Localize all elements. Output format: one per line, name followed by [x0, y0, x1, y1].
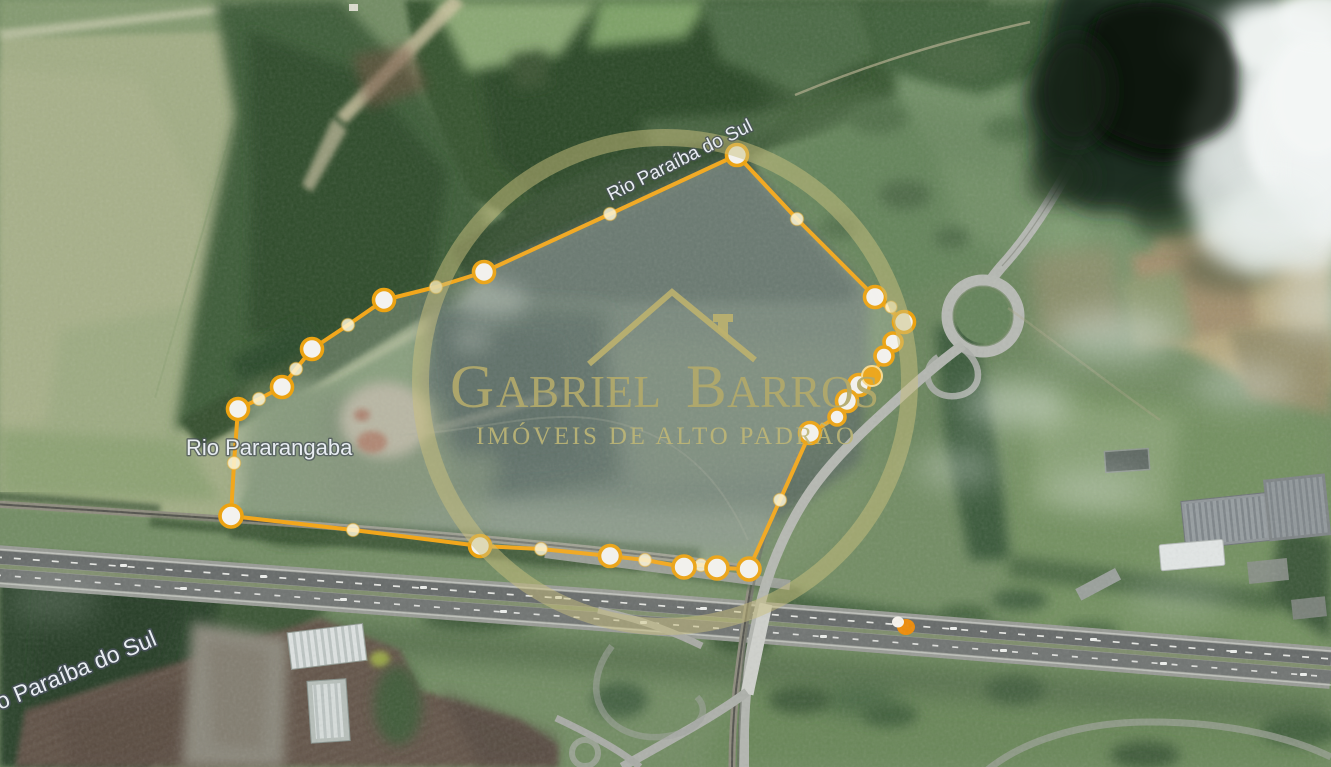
svg-text:ARROS: ARROS [727, 367, 880, 417]
svg-text:Rio Pararangaba: Rio Pararangaba [186, 435, 353, 460]
svg-text:ABRIEL: ABRIEL [496, 367, 662, 417]
svg-text:B: B [686, 354, 727, 421]
svg-text:G: G [450, 354, 494, 421]
svg-text:IMÓVEIS DE ALTO PADRÃO: IMÓVEIS DE ALTO PADRÃO [476, 422, 857, 450]
